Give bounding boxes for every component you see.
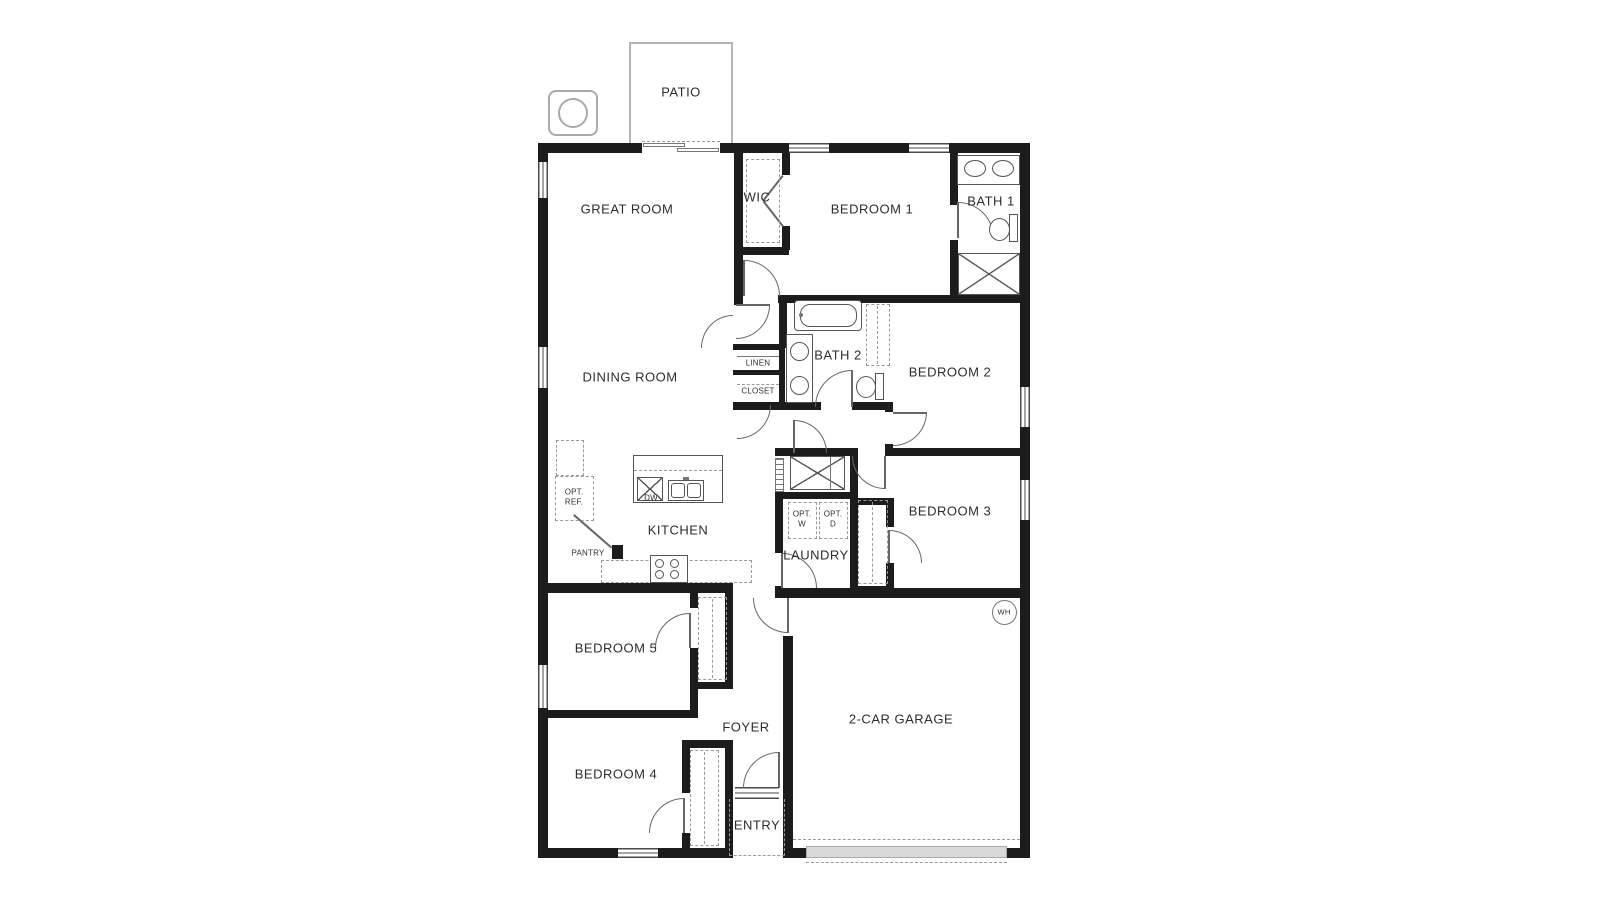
wall <box>690 593 698 608</box>
window <box>538 347 548 388</box>
louver-door <box>775 458 784 492</box>
room-label-bath1: BATH 1 <box>967 194 1015 209</box>
door-arc-hall <box>736 305 770 339</box>
garage-door <box>806 846 1007 858</box>
room-label-laundry: LAUNDRY <box>783 548 848 563</box>
door-arc-garage <box>753 598 788 633</box>
door-leaf <box>893 412 927 414</box>
floor-plan: PATIO <box>0 0 1600 900</box>
door-arc-bedroom2 <box>893 412 927 446</box>
ac-unit-fan-icon <box>558 98 588 128</box>
room-label-entry: ENTRY <box>734 818 780 833</box>
wall <box>782 153 790 175</box>
label-opt-ref-line2: REF. <box>565 498 583 507</box>
sink-bowl <box>687 483 701 498</box>
wall <box>885 403 893 412</box>
door-leaf <box>957 202 959 238</box>
label-closet: CLOSET <box>741 387 774 396</box>
wall <box>682 748 690 793</box>
wall-top <box>538 143 1030 153</box>
door-arc-bath2 <box>815 370 852 407</box>
garage-door-dash <box>806 862 1007 863</box>
faucet-icon <box>683 477 689 480</box>
door-arc-bedroom5 <box>655 613 690 648</box>
sink-icon <box>790 342 809 361</box>
toilet-tank <box>875 373 884 400</box>
sliding-door-panel <box>643 143 685 147</box>
sliding-door-panel <box>677 148 719 152</box>
wall-pantry-post <box>612 545 623 559</box>
wall <box>779 349 785 402</box>
wall-garage-top <box>775 588 1030 598</box>
wall <box>538 583 733 593</box>
air-handler <box>790 456 845 490</box>
slider-dash <box>642 141 720 142</box>
door-leaf <box>743 260 745 296</box>
window <box>538 665 548 708</box>
door-leaf <box>884 456 886 489</box>
door-arc-hall-mech <box>794 420 827 453</box>
label-opt-w-line1: OPT. <box>793 510 812 519</box>
door-arc-bedroom4 <box>649 798 684 833</box>
burner-icon <box>670 559 679 568</box>
room-label-bedroom1: BEDROOM 1 <box>831 202 914 217</box>
window <box>909 143 949 153</box>
toilet-tank <box>1009 214 1018 242</box>
label-opt-ref-line1: OPT. <box>565 488 584 497</box>
wall <box>775 499 783 553</box>
wall <box>733 344 785 350</box>
burner-icon <box>670 570 679 579</box>
window <box>618 848 658 858</box>
wall <box>538 710 690 718</box>
label-opt-d-line1: OPT. <box>824 510 843 519</box>
shower <box>958 253 1020 295</box>
room-label-wic: WIC <box>744 190 771 205</box>
room-label-bath2: BATH 2 <box>814 348 862 363</box>
window <box>1020 480 1030 520</box>
entry-threshold <box>735 787 779 799</box>
wall <box>735 247 789 255</box>
room-label-bedroom3: BEDROOM 3 <box>909 504 992 519</box>
door-arc-entry <box>743 752 779 788</box>
room-label-kitchen: KITCHEN <box>648 523 709 538</box>
counter-dash <box>556 440 584 476</box>
closet-rod <box>737 384 779 385</box>
door-leaf <box>851 370 853 407</box>
bathtub-inner <box>800 304 857 327</box>
wall <box>733 370 785 375</box>
air-handler-divider <box>830 457 831 489</box>
bedroom3-closet <box>858 500 888 584</box>
wall <box>682 833 690 858</box>
door-arc-linen <box>701 315 733 348</box>
door-arc-bedroom1 <box>744 260 780 296</box>
room-label-dining: DINING ROOM <box>582 370 677 385</box>
tub-faucet-icon <box>799 313 803 317</box>
window <box>538 162 548 198</box>
door-leaf <box>888 530 890 563</box>
wall <box>950 240 958 303</box>
closet-rod <box>877 306 878 364</box>
room-label-foyer: FOYER <box>722 720 769 735</box>
door-leaf <box>736 304 770 306</box>
closet-rod <box>712 599 713 678</box>
label-opt-w-line2: W <box>798 520 806 529</box>
sink-icon <box>992 160 1014 177</box>
wall-left <box>538 143 548 858</box>
label-wh: WH <box>998 608 1011 617</box>
door-leaf <box>778 752 780 788</box>
wall <box>734 153 743 305</box>
wall <box>775 492 858 499</box>
door-arc-bedroom3-closet <box>889 530 922 563</box>
toilet-bowl <box>989 218 1010 241</box>
door-leaf <box>787 598 789 633</box>
label-opt-d-line2: D <box>830 520 836 529</box>
label-pantry: PANTRY <box>572 549 605 558</box>
sink-bowl <box>671 483 685 498</box>
wall <box>682 740 733 748</box>
wall <box>782 226 790 250</box>
label-linen: LINEN <box>746 359 771 368</box>
sink-icon <box>790 376 809 395</box>
room-label-bedroom5: BEDROOM 5 <box>575 641 658 656</box>
sink-icon <box>964 160 986 177</box>
linen-shelf <box>737 356 779 357</box>
island-counter-dash <box>634 470 722 471</box>
room-label-bedroom4: BEDROOM 4 <box>575 767 658 782</box>
window <box>789 143 829 153</box>
toilet-bowl <box>856 376 876 398</box>
burner-icon <box>655 559 664 568</box>
wall <box>690 682 733 689</box>
wall <box>885 448 1030 456</box>
closet-rod <box>872 502 873 582</box>
room-label-bedroom2: BEDROOM 2 <box>909 365 992 380</box>
door-leaf <box>683 798 685 833</box>
door-leaf <box>793 420 795 453</box>
garage-apron-dash <box>793 839 1020 840</box>
label-dw: DW <box>644 494 658 503</box>
window <box>1020 387 1030 427</box>
closet-rod <box>704 752 705 844</box>
door-arc-hall-closet <box>737 405 771 439</box>
burner-icon <box>655 570 664 579</box>
room-label-great-room: GREAT ROOM <box>581 202 674 217</box>
room-label-garage: 2-CAR GARAGE <box>849 712 953 727</box>
room-label-patio: PATIO <box>661 85 701 100</box>
bedroom2-closet <box>866 304 890 366</box>
door-leaf <box>689 613 691 648</box>
